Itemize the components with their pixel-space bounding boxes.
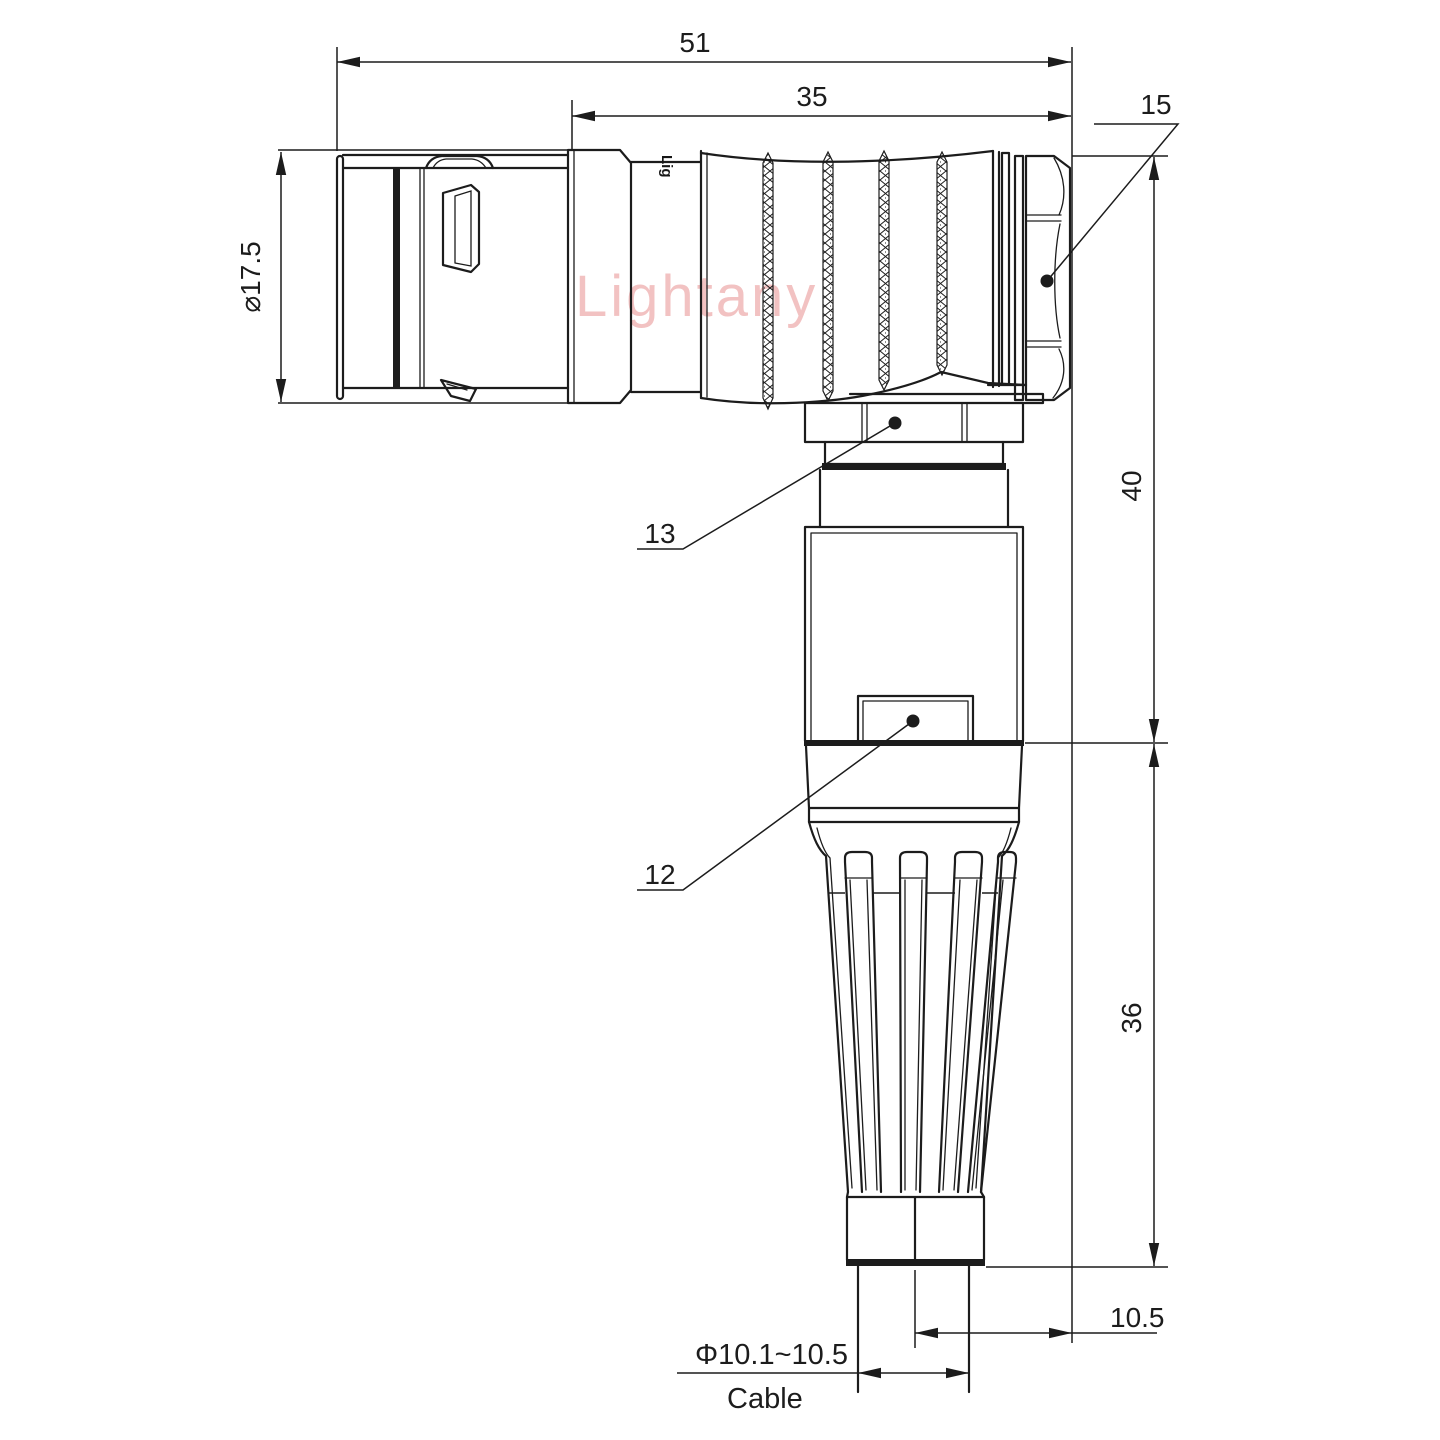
knurl-strip — [879, 151, 889, 390]
housing-body — [805, 527, 1023, 741]
latch-notch — [441, 380, 476, 401]
dim-upper-height-40: 40 — [1025, 156, 1168, 743]
plug-front-barrel — [337, 155, 568, 401]
leader-dot-12 — [907, 715, 920, 728]
boot-end-rings — [993, 151, 999, 387]
latch-window — [443, 185, 479, 272]
housing-body-inner — [811, 533, 1017, 741]
dim-label-51: 51 — [679, 27, 710, 58]
watermark-text: Lightany — [575, 264, 818, 329]
leader-dot-13 — [889, 417, 902, 430]
gland-outline — [805, 403, 1023, 442]
boot-bottom-curve — [701, 372, 1026, 403]
key-bump-inner — [433, 159, 486, 168]
dim-label-17-5: ⌀17.5 — [235, 241, 266, 312]
housing-cylinder — [820, 470, 1008, 527]
dim-rear-length-35: 35 — [572, 81, 1071, 151]
gland-hex-nut — [805, 403, 1023, 442]
leader-dot-15 — [1041, 275, 1054, 288]
key-bump — [426, 156, 493, 168]
dim-front-diameter-17-5: ⌀17.5 — [235, 150, 568, 403]
neck — [806, 746, 1022, 822]
item-label-13: 13 — [644, 518, 675, 549]
boot-top-curve — [701, 151, 993, 162]
dim-label-35: 35 — [796, 81, 827, 112]
cone-fins — [829, 852, 1016, 1192]
washer — [1015, 156, 1023, 400]
dim-label-40: 40 — [1116, 470, 1147, 501]
item-label-12: 12 — [644, 859, 675, 890]
gland-flats — [862, 403, 967, 442]
technical-drawing-right-angle-connector: Lightany Lig — [0, 0, 1440, 1440]
dim-cable-diameter: Φ10.1~10.5 Cable — [677, 1339, 970, 1415]
item-label-15: 15 — [1140, 89, 1171, 120]
hex-vertex-arcs — [1053, 158, 1064, 398]
dim-axis-offset-10-5: 10.5 — [915, 1270, 1165, 1348]
housing-bottom-thick — [804, 740, 1024, 746]
dim-label-10-5: 10.5 — [1110, 1302, 1165, 1333]
knurl-strip — [763, 153, 773, 409]
housing-ring — [825, 442, 1003, 464]
cone-left-outer — [809, 822, 848, 1197]
cable-label: Cable — [727, 1383, 803, 1415]
leader-item-15: 15 — [1041, 89, 1179, 288]
lower-housing — [804, 442, 1024, 746]
dim-label-36: 36 — [1116, 1002, 1147, 1033]
knurl-strip — [937, 152, 947, 375]
dim-label-cable-diameter: Φ10.1~10.5 — [695, 1339, 848, 1371]
housing-groove — [822, 463, 1006, 470]
knurl-strip — [823, 152, 833, 401]
strain-relief — [806, 746, 1022, 1266]
plug-front-face — [337, 156, 343, 399]
end-cap — [846, 1197, 985, 1266]
body-brand-mark: Lig — [658, 155, 675, 178]
barrel-seam-thick — [393, 168, 400, 388]
barrel-seam-double — [420, 168, 424, 388]
